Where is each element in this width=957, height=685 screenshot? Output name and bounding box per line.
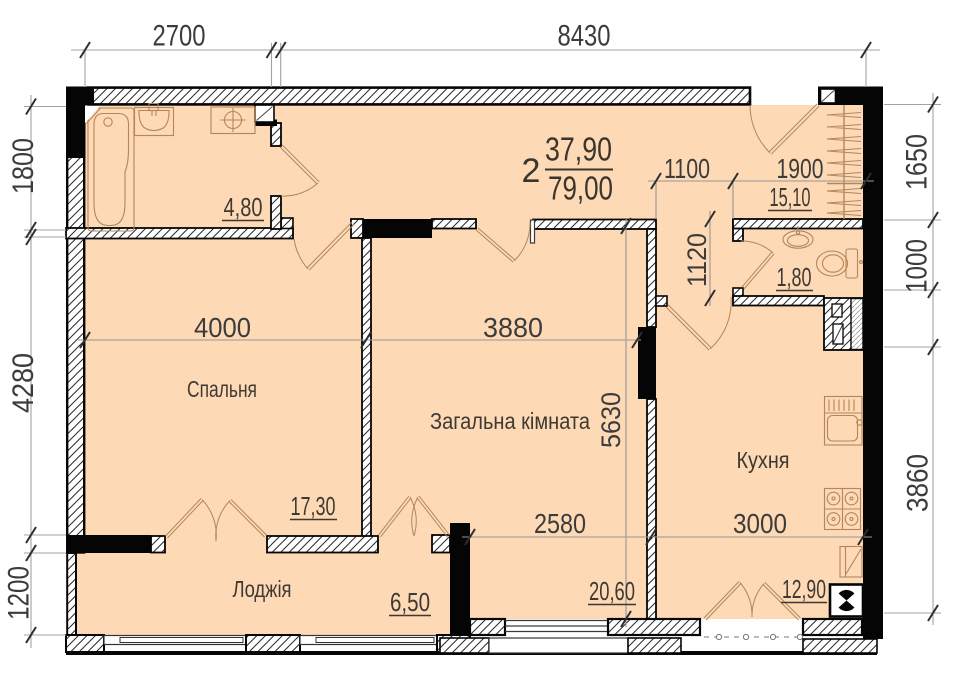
svg-text:1120: 1120	[682, 233, 712, 287]
svg-text:37,90: 37,90	[545, 131, 612, 168]
svg-text:Спальня: Спальня	[187, 376, 257, 402]
svg-text:3000: 3000	[733, 508, 787, 539]
svg-text:3880: 3880	[483, 312, 543, 343]
svg-text:8430: 8430	[558, 20, 611, 53]
svg-text:3860: 3860	[902, 454, 935, 512]
svg-text:1000: 1000	[901, 239, 934, 293]
svg-text:1900: 1900	[777, 153, 824, 184]
svg-text:Лоджія: Лоджія	[233, 576, 292, 602]
svg-text:1100: 1100	[664, 153, 710, 184]
svg-text:Загальна кімната: Загальна кімната	[430, 408, 590, 434]
svg-text:1,80: 1,80	[777, 262, 812, 292]
svg-text:17,30: 17,30	[291, 491, 336, 521]
svg-text:12,90: 12,90	[782, 574, 826, 604]
svg-text:Кухня: Кухня	[737, 447, 790, 473]
svg-text:4000: 4000	[194, 312, 251, 343]
svg-text:2700: 2700	[153, 20, 206, 53]
svg-text:2: 2	[522, 152, 541, 190]
svg-text:15,10: 15,10	[770, 182, 811, 212]
svg-text:1650: 1650	[901, 134, 934, 190]
svg-text:4,80: 4,80	[224, 192, 263, 222]
svg-text:79,00: 79,00	[548, 170, 613, 207]
svg-text:5630: 5630	[596, 392, 626, 448]
svg-text:6,50: 6,50	[390, 587, 430, 617]
svg-text:1200: 1200	[3, 566, 36, 620]
svg-text:1800: 1800	[7, 138, 40, 194]
svg-text:2580: 2580	[534, 508, 586, 539]
svg-text:20,60: 20,60	[589, 576, 635, 606]
svg-text:4280: 4280	[7, 353, 40, 413]
